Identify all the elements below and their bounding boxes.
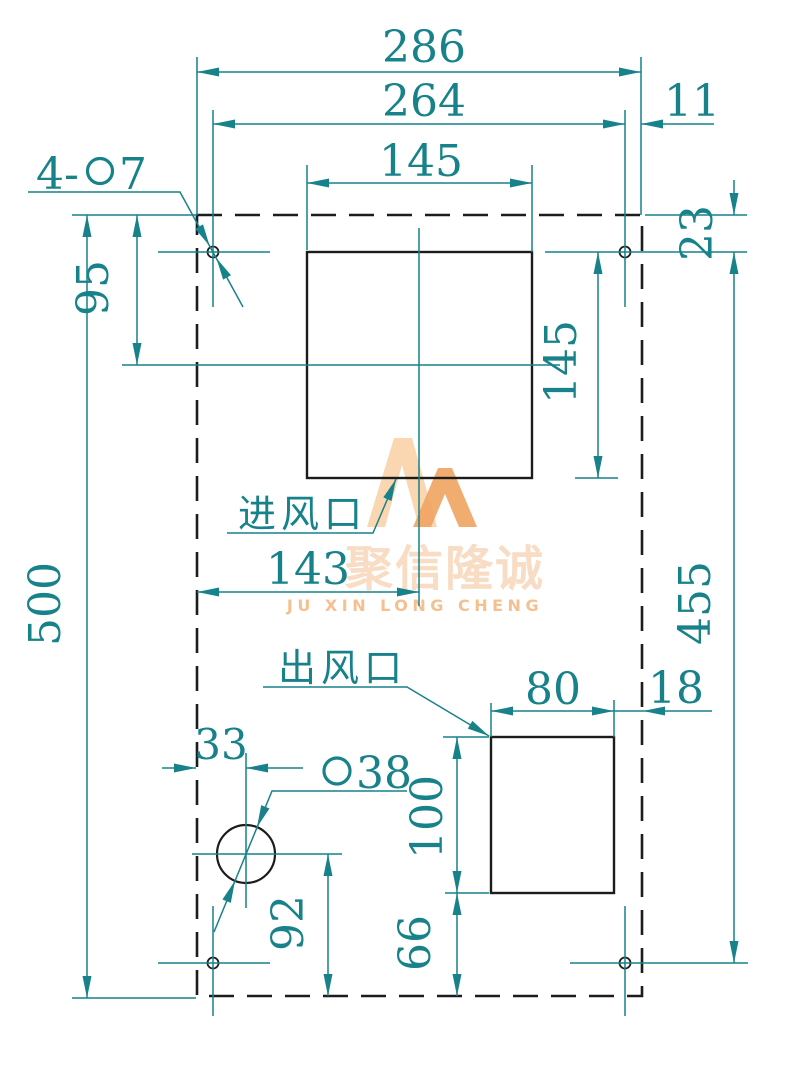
extension-lines — [72, 57, 748, 1016]
diameter-symbol — [324, 758, 350, 784]
dim-inner-width: 264 — [382, 76, 466, 127]
drawing-canvas: 聚信隆诚 JU XIN LONG CHENG — [0, 0, 800, 1076]
circle-callout-diameter: 38 — [356, 748, 412, 799]
inlet-label: 进风口 — [238, 492, 367, 536]
dim-inlet-width: 145 — [379, 136, 463, 187]
dim-inlet-top-offset: 95 — [68, 260, 119, 316]
diameter-symbol — [88, 159, 113, 184]
cad-drawing: 聚信隆诚 JU XIN LONG CHENG — [0, 0, 800, 1076]
hole-callout-diameter: 7 — [119, 149, 147, 200]
dim-inlet-center-x: 143 — [266, 544, 350, 595]
watermark-latin-text: JU XIN LONG CHENG — [286, 596, 543, 615]
dim-overall-height: 500 — [20, 562, 71, 646]
dim-hole-top-offset: 23 — [672, 205, 723, 261]
dim-outlet-width: 80 — [525, 664, 581, 715]
dim-inlet-height: 145 — [536, 320, 587, 404]
dim-hole-span-height: 455 — [670, 561, 721, 645]
dimension-lines — [28, 72, 734, 998]
dim-outlet-edge-offset: 18 — [648, 663, 704, 714]
dim-outlet-bottom-offset: 66 — [390, 915, 441, 971]
hole-callout-prefix: 4- — [36, 149, 79, 200]
outlet-cutout — [491, 737, 614, 893]
outlet-label: 出风口 — [278, 646, 407, 690]
dim-circle-bottom-offset: 92 — [263, 895, 314, 951]
dim-overall-width: 286 — [382, 22, 466, 73]
watermark-cjk-text: 聚信隆诚 — [344, 541, 545, 597]
dim-circle-offset-x: 33 — [194, 720, 247, 769]
leader-hole-callout — [28, 192, 243, 307]
leader-outlet — [263, 687, 489, 736]
dim-hole-edge-offset: 11 — [664, 76, 720, 127]
